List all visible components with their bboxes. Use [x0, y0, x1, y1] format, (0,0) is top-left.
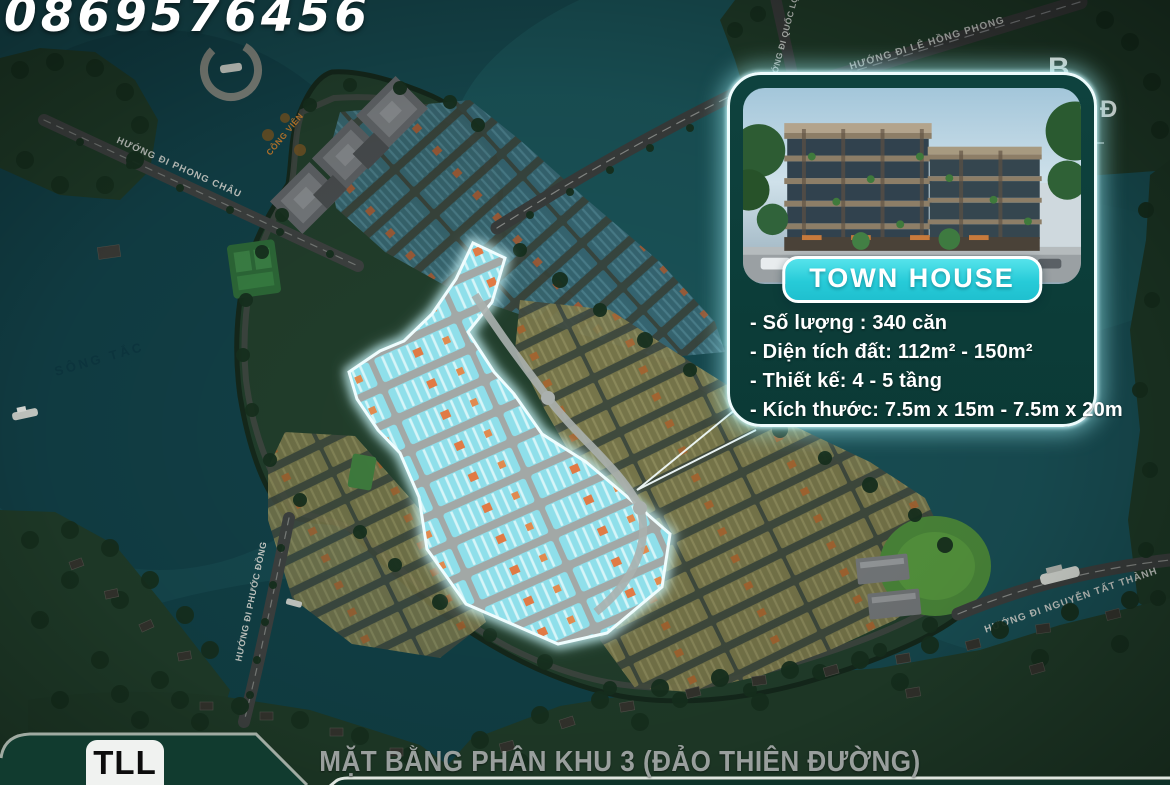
spec-dimensions: - Kích thước: 7.5m x 15m - 7.5m x 20m — [750, 396, 1084, 425]
townhouse-render-photo — [743, 88, 1081, 284]
spec-land-area: - Diện tích đất: 112m² - 150m² — [750, 338, 1084, 367]
townhouse-info-card: TOWN HOUSE - Số lượng : 340 căn - Diện t… — [727, 72, 1097, 427]
spec-design-floors: - Thiết kế: 4 - 5 tầng — [750, 367, 1084, 396]
tll-logo: TLL — [86, 740, 164, 785]
building-mass — [784, 123, 1041, 251]
townhouse-type-badge: TOWN HOUSE — [782, 256, 1042, 303]
masterplan-poster: SÔNG TẮC — [0, 0, 1170, 785]
spec-quantity: - Số lượng : 340 căn — [750, 309, 1084, 338]
compass-east-label: Đ — [1100, 96, 1117, 123]
townhouse-specs-list: - Số lượng : 340 căn - Diện tích đất: 11… — [750, 309, 1084, 425]
plan-title: MẶT BẰNG PHÂN KHU 3 (ĐẢO THIÊN ĐƯỜNG) — [278, 746, 962, 779]
townhouse-building-art — [743, 88, 1081, 284]
phone-number: 0869576456 — [4, 0, 371, 43]
